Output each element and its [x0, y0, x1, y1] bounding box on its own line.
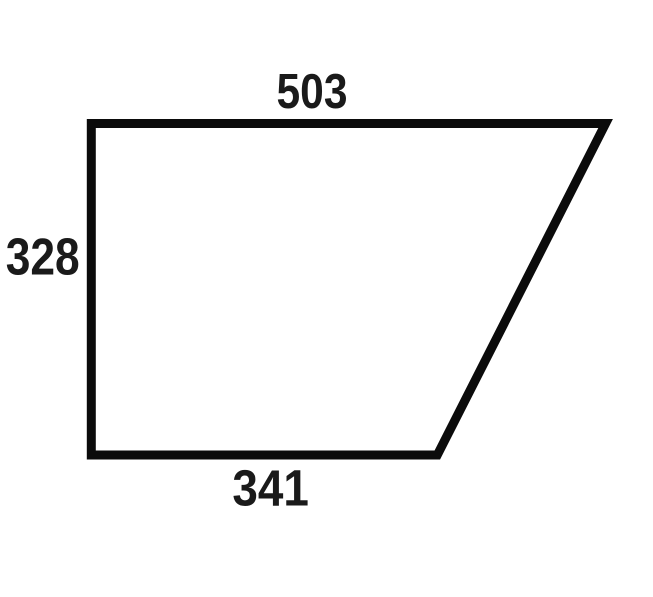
svg-text:328: 328 — [6, 227, 80, 285]
svg-text:503: 503 — [277, 65, 348, 119]
svg-text:341: 341 — [232, 460, 309, 517]
